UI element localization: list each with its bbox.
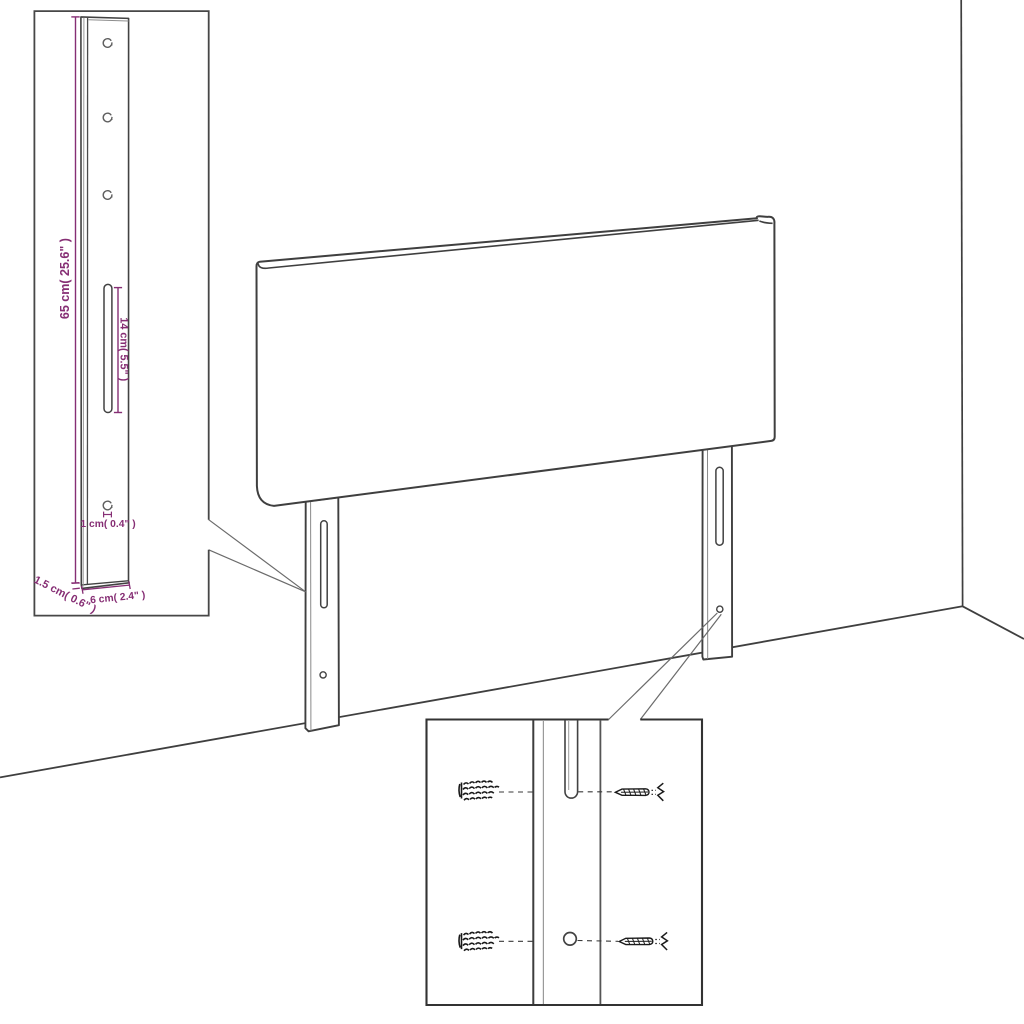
svg-text:65 cm( 25.6" ): 65 cm( 25.6" ) xyxy=(58,238,72,319)
svg-text:6 cm( 2.4" ): 6 cm( 2.4" ) xyxy=(90,590,146,606)
svg-text:14 cm( 5.5" ): 14 cm( 5.5" ) xyxy=(118,317,130,381)
svg-text:1 cm( 0.4" ): 1 cm( 0.4" ) xyxy=(80,519,135,530)
